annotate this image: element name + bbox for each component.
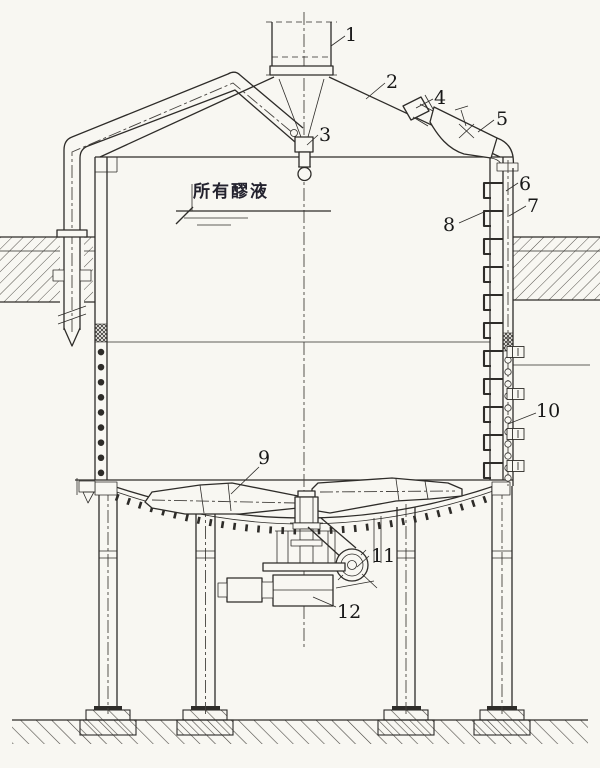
building-wall-right xyxy=(513,237,600,365)
part-label-5: 5 xyxy=(478,108,508,132)
drawing-canvas: 所有醪液 1 2 3 4 5 6 7 8 9 10 11 12 xyxy=(0,0,600,768)
feed-supply-pipe xyxy=(53,72,303,346)
part-label-1: 1 xyxy=(331,24,357,46)
svg-text:1: 1 xyxy=(345,24,357,46)
svg-text:4: 4 xyxy=(434,87,446,109)
feed-inlet-pipe xyxy=(266,22,337,75)
sight-fitting xyxy=(403,97,429,120)
patent-figure: 所有醪液 1 2 3 4 5 6 7 8 9 10 11 12 xyxy=(0,0,600,768)
svg-text:9: 9 xyxy=(258,447,270,469)
leg-3 xyxy=(397,504,415,714)
rake-arm-right xyxy=(312,478,462,513)
svg-text:6: 6 xyxy=(519,173,531,195)
rake-arm-left xyxy=(145,483,298,514)
svg-text:11: 11 xyxy=(371,545,395,567)
part-label-2: 2 xyxy=(366,71,398,99)
svg-text:12: 12 xyxy=(337,601,361,623)
pipe-flange xyxy=(57,230,87,237)
svg-text:7: 7 xyxy=(527,195,539,217)
pipe-clamp-left xyxy=(95,324,107,342)
svg-text:8: 8 xyxy=(443,214,455,236)
svg-text:10: 10 xyxy=(536,400,560,422)
part-labels: 1 2 3 4 5 6 7 8 9 10 11 12 xyxy=(231,24,560,623)
leg-4 xyxy=(492,486,512,714)
part-label-10: 10 xyxy=(508,400,560,424)
leg-2 xyxy=(196,504,215,714)
svg-text:2: 2 xyxy=(386,71,398,93)
motor xyxy=(218,578,273,602)
svg-text:5: 5 xyxy=(496,108,508,130)
svg-text:3: 3 xyxy=(319,124,331,146)
agitator-hub xyxy=(290,491,323,563)
overflow-funnel-assembly xyxy=(403,95,518,486)
liquid-level-annotation: 所有醪液 xyxy=(176,181,331,225)
side-drain-nozzle xyxy=(77,478,95,503)
spray-nozzle xyxy=(291,130,314,181)
part-label-6: 6 xyxy=(506,173,531,195)
leg-1 xyxy=(99,488,117,714)
part-label-8: 8 xyxy=(443,212,484,236)
annotation-text: 所有醪液 xyxy=(193,181,269,202)
wall-rungs xyxy=(484,183,503,478)
funnel-body xyxy=(430,107,497,158)
